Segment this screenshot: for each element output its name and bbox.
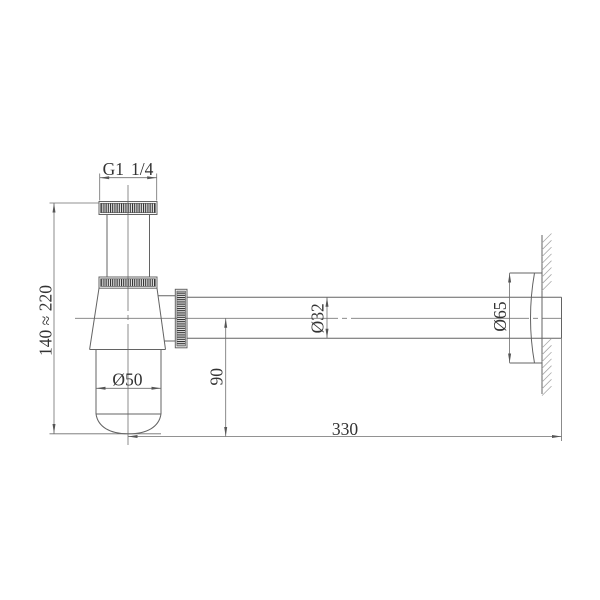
svg-text:Ø65: Ø65 xyxy=(490,301,510,331)
svg-text:90: 90 xyxy=(207,368,227,386)
svg-text:Ø50: Ø50 xyxy=(112,370,142,390)
svg-text:330: 330 xyxy=(332,419,359,439)
svg-text:Ø32: Ø32 xyxy=(307,303,327,333)
svg-text:G1 1/4: G1 1/4 xyxy=(103,159,154,179)
svg-text:140≈220: 140≈220 xyxy=(36,285,56,356)
